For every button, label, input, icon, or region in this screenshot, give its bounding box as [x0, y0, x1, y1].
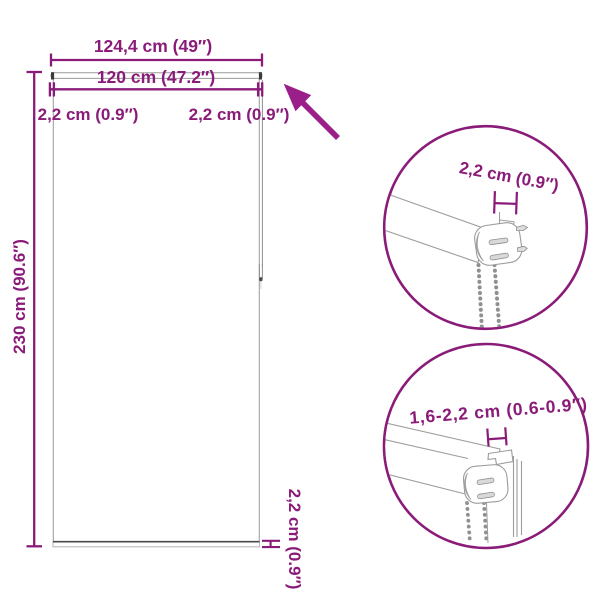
- svg-text:2,2 cm (0.9″): 2,2 cm (0.9″): [38, 105, 139, 124]
- svg-text:120 cm (47.2″): 120 cm (47.2″): [97, 67, 215, 87]
- svg-text:2,2 cm (0.9″): 2,2 cm (0.9″): [285, 489, 304, 590]
- svg-text:124,4 cm (49″): 124,4 cm (49″): [94, 36, 212, 56]
- svg-text:2,2 cm (0.9″): 2,2 cm (0.9″): [189, 105, 290, 124]
- svg-text:230 cm (90.6″): 230 cm (90.6″): [10, 239, 29, 354]
